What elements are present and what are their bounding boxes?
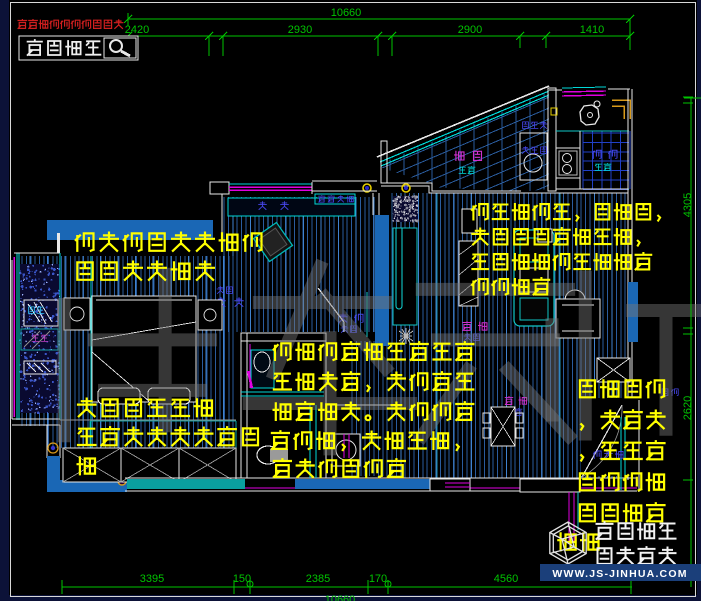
svg-text:10660: 10660 bbox=[325, 594, 356, 601]
svg-text:WWW.JS-JINHUA.COM: WWW.JS-JINHUA.COM bbox=[552, 568, 687, 580]
svg-text:4560: 4560 bbox=[494, 573, 518, 585]
svg-text:4305: 4305 bbox=[682, 193, 694, 217]
svg-text:2420: 2420 bbox=[125, 24, 149, 36]
svg-text:10660: 10660 bbox=[331, 7, 362, 19]
svg-text:2385: 2385 bbox=[306, 573, 330, 585]
svg-text:3395: 3395 bbox=[140, 573, 164, 585]
svg-text:2900: 2900 bbox=[458, 24, 482, 36]
svg-text:1410: 1410 bbox=[580, 24, 604, 36]
svg-text:2620: 2620 bbox=[682, 396, 694, 420]
svg-text:2930: 2930 bbox=[288, 24, 312, 36]
svg-text:170: 170 bbox=[369, 573, 387, 585]
svg-text:150: 150 bbox=[233, 573, 251, 585]
